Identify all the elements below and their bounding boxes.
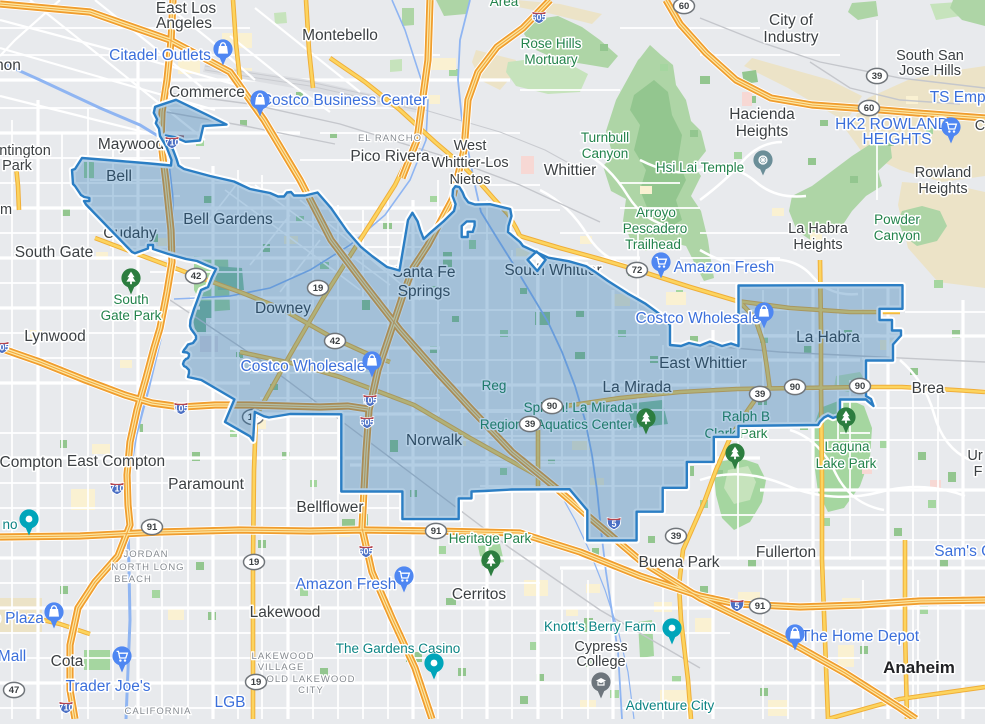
svg-text:105: 105 bbox=[0, 342, 10, 352]
svg-text:o Plaza: o Plaza bbox=[0, 610, 44, 627]
svg-text:90: 90 bbox=[855, 381, 866, 392]
svg-text:Heights: Heights bbox=[793, 237, 842, 253]
svg-text:EL RANCHO: EL RANCHO bbox=[358, 133, 422, 144]
svg-text:Arroyo: Arroyo bbox=[636, 205, 676, 220]
svg-text:91: 91 bbox=[755, 601, 766, 612]
svg-text:39: 39 bbox=[872, 71, 883, 82]
svg-text:Turnbull: Turnbull bbox=[581, 130, 629, 145]
svg-text:LAKEWOOD: LAKEWOOD bbox=[252, 651, 315, 662]
svg-text:Brea: Brea bbox=[912, 380, 945, 397]
svg-text:Hacienda: Hacienda bbox=[729, 106, 795, 123]
svg-text:JORDAN: JORDAN bbox=[123, 549, 168, 560]
svg-text:Ur: Ur bbox=[967, 448, 982, 464]
svg-text:CITY: CITY bbox=[298, 685, 324, 696]
svg-text:College: College bbox=[576, 654, 625, 670]
svg-text:LGB: LGB bbox=[214, 694, 245, 711]
svg-text:The Home Depot: The Home Depot bbox=[801, 628, 920, 645]
svg-text:91: 91 bbox=[147, 522, 158, 533]
svg-text:South San: South San bbox=[896, 48, 964, 64]
svg-text:non: non bbox=[0, 57, 21, 74]
svg-text:Knott's Berry Farm: Knott's Berry Farm bbox=[544, 619, 656, 634]
svg-text:5: 5 bbox=[734, 601, 739, 611]
svg-text:Fullerton: Fullerton bbox=[756, 544, 816, 561]
svg-text:Cota: Cota bbox=[51, 653, 84, 670]
svg-text:Hsi Lai Temple: Hsi Lai Temple bbox=[656, 160, 744, 175]
svg-text:72: 72 bbox=[632, 265, 643, 276]
svg-text:Lake Park: Lake Park bbox=[816, 456, 877, 471]
svg-text:105: 105 bbox=[362, 395, 377, 405]
svg-text:Area: Area bbox=[490, 0, 519, 9]
svg-text:605: 605 bbox=[358, 546, 373, 556]
svg-text:105: 105 bbox=[173, 403, 188, 413]
svg-text:Whittier-Los: Whittier-Los bbox=[431, 155, 508, 171]
svg-text:39: 39 bbox=[671, 531, 682, 542]
svg-text:Buena Park: Buena Park bbox=[639, 554, 720, 571]
svg-text:Canyon: Canyon bbox=[874, 228, 921, 243]
svg-text:Costco Wholesale: Costco Wholesale bbox=[241, 358, 366, 375]
svg-text:605: 605 bbox=[531, 12, 546, 22]
svg-text:Paramount: Paramount bbox=[168, 476, 245, 493]
svg-text:39: 39 bbox=[755, 389, 766, 400]
svg-text:Costco Business Center: Costco Business Center bbox=[261, 92, 427, 109]
svg-text:Laguna: Laguna bbox=[824, 439, 870, 454]
svg-text:60: 60 bbox=[679, 1, 690, 12]
svg-text:5: 5 bbox=[611, 519, 616, 529]
svg-text:Lakewood: Lakewood bbox=[250, 604, 321, 621]
svg-text:South Gate: South Gate bbox=[15, 244, 93, 261]
svg-text:Costco Wholesale: Costco Wholesale bbox=[636, 310, 761, 327]
svg-text:Montebello: Montebello bbox=[302, 27, 378, 44]
svg-text:no: no bbox=[2, 517, 17, 532]
svg-text:The Gardens Casino: The Gardens Casino bbox=[336, 641, 461, 656]
svg-text:710: 710 bbox=[58, 702, 73, 712]
svg-text:Heights: Heights bbox=[736, 123, 789, 140]
svg-text:City of: City of bbox=[769, 12, 814, 29]
svg-text:47: 47 bbox=[9, 685, 20, 696]
svg-text:Whittier: Whittier bbox=[544, 162, 597, 179]
svg-text:605: 605 bbox=[359, 417, 374, 427]
svg-text:Cerritos: Cerritos bbox=[452, 586, 507, 603]
svg-text:Maywood: Maywood bbox=[98, 136, 164, 153]
svg-text:F: F bbox=[974, 464, 983, 480]
svg-text:710: 710 bbox=[164, 137, 179, 147]
svg-text:Industry: Industry bbox=[763, 29, 818, 46]
svg-text:Bellflower: Bellflower bbox=[296, 499, 363, 516]
svg-text:19: 19 bbox=[251, 677, 262, 688]
svg-text:East Compton: East Compton bbox=[67, 453, 165, 470]
svg-text:Trailhead: Trailhead bbox=[625, 237, 681, 252]
svg-text:BEACH: BEACH bbox=[114, 574, 152, 585]
svg-text:Compton: Compton bbox=[0, 454, 62, 471]
svg-text:19: 19 bbox=[313, 283, 324, 294]
svg-text:Park: Park bbox=[2, 158, 33, 174]
svg-text:OLD LAKEWOOD: OLD LAKEWOOD bbox=[266, 674, 355, 685]
svg-text:Gate Park: Gate Park bbox=[101, 308, 162, 323]
svg-text:ntington: ntington bbox=[0, 143, 51, 159]
svg-text:Sam's Cl: Sam's Cl bbox=[934, 543, 985, 560]
svg-text:C: C bbox=[975, 118, 985, 134]
svg-text:Jose Hills: Jose Hills bbox=[899, 63, 961, 79]
svg-text:Lynwood: Lynwood bbox=[24, 328, 85, 345]
svg-text:19: 19 bbox=[249, 557, 260, 568]
svg-text:42: 42 bbox=[191, 271, 202, 282]
svg-text:La Habra: La Habra bbox=[788, 221, 849, 237]
svg-text:Pescadero: Pescadero bbox=[623, 221, 688, 236]
svg-text:Cypress: Cypress bbox=[574, 639, 627, 655]
svg-text:Rose Hills: Rose Hills bbox=[521, 36, 582, 51]
svg-text:Mortuary: Mortuary bbox=[524, 52, 578, 67]
svg-text:91: 91 bbox=[431, 526, 442, 537]
svg-text:Heights: Heights bbox=[918, 181, 967, 197]
svg-text:710: 710 bbox=[109, 483, 124, 493]
svg-text:42: 42 bbox=[330, 336, 341, 347]
svg-text:90: 90 bbox=[547, 401, 558, 412]
svg-text:90: 90 bbox=[790, 382, 801, 393]
svg-text:39: 39 bbox=[525, 419, 536, 430]
svg-text:Trader Joe's: Trader Joe's bbox=[65, 678, 150, 695]
svg-text:West: West bbox=[454, 138, 487, 154]
svg-text:Citadel Outlets: Citadel Outlets bbox=[109, 47, 211, 64]
svg-text:60: 60 bbox=[864, 103, 875, 114]
svg-text:Rowland: Rowland bbox=[915, 165, 971, 181]
svg-text:NORTH LONG: NORTH LONG bbox=[111, 562, 184, 573]
svg-text:Powder: Powder bbox=[874, 212, 920, 227]
svg-text:Amazon Fresh: Amazon Fresh bbox=[674, 259, 775, 276]
svg-text:HEIGHTS: HEIGHTS bbox=[863, 131, 932, 148]
svg-text:Mall: Mall bbox=[0, 648, 26, 665]
svg-text:am: am bbox=[0, 202, 12, 218]
svg-text:Amazon Fresh: Amazon Fresh bbox=[296, 576, 397, 593]
svg-text:TS Empo: TS Empo bbox=[930, 89, 985, 106]
svg-text:Heritage Park: Heritage Park bbox=[449, 531, 532, 546]
svg-text:CALIFORNIA: CALIFORNIA bbox=[124, 706, 191, 717]
svg-text:Pico Rivera: Pico Rivera bbox=[350, 148, 430, 165]
svg-text:Angeles: Angeles bbox=[156, 15, 212, 32]
svg-text:Canyon: Canyon bbox=[582, 146, 629, 161]
svg-text:Adventure City: Adventure City bbox=[626, 698, 715, 713]
svg-text:VILLAGE: VILLAGE bbox=[258, 662, 305, 673]
svg-text:Anaheim: Anaheim bbox=[883, 658, 955, 677]
